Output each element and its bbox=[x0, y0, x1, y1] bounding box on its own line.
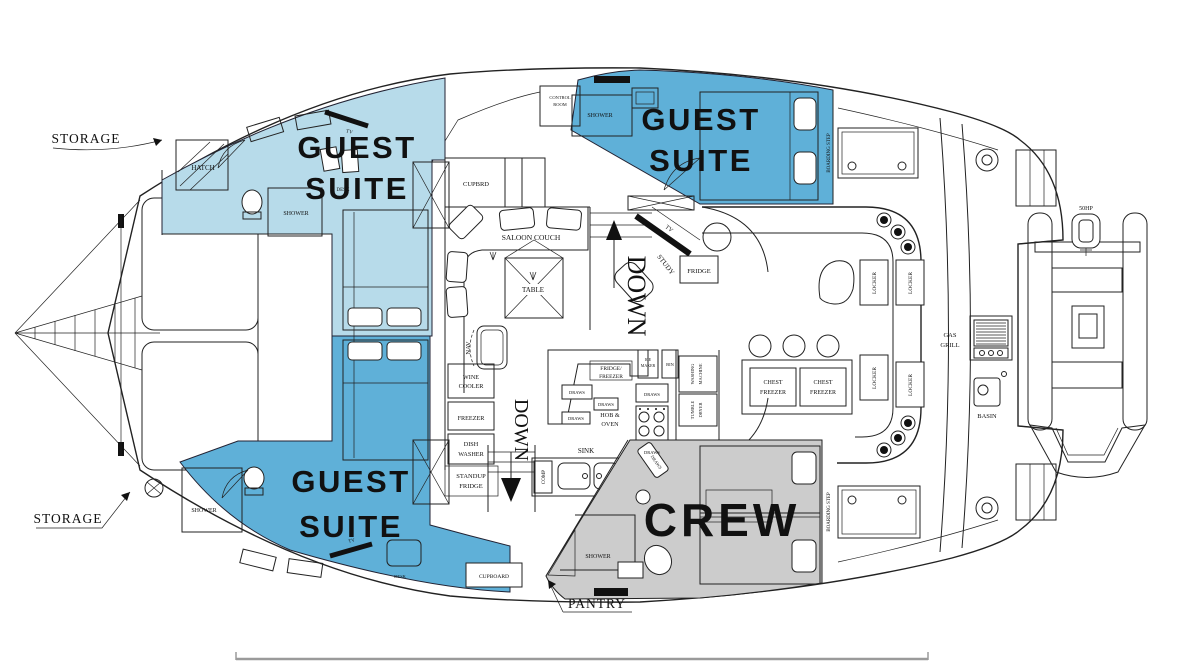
wine-cooler-label: WINE bbox=[463, 374, 479, 381]
scale-bar bbox=[236, 652, 928, 660]
basin bbox=[974, 372, 1007, 407]
ice-maker-label: ICE bbox=[645, 357, 652, 362]
pantry-hatch-mark bbox=[594, 588, 628, 596]
boarding-step-label: BOARDING STEP bbox=[827, 492, 832, 532]
cockpit bbox=[702, 207, 924, 463]
fridge-freezer-label: FRIDGE/ bbox=[600, 366, 622, 372]
up-arrow-icon bbox=[606, 220, 622, 240]
draws-label: DRAWS bbox=[598, 402, 614, 407]
bin-label: BIN bbox=[666, 362, 675, 367]
standup-fridge-box bbox=[445, 466, 498, 496]
stern-steps bbox=[1016, 150, 1063, 520]
guest-suite-top-left bbox=[162, 78, 445, 336]
tumble-dryer-label: TUMBLE bbox=[690, 401, 695, 420]
saloon-couch bbox=[446, 204, 582, 318]
hob-oven-label: OVEN bbox=[601, 421, 619, 428]
nav-label: NAV bbox=[465, 341, 472, 355]
boarding-hatch bbox=[838, 128, 918, 178]
suite-title: SUITE bbox=[649, 143, 753, 178]
chest-freezer-box bbox=[800, 368, 846, 406]
tv-icon bbox=[636, 216, 690, 254]
crew-title: CREW bbox=[644, 494, 801, 546]
boarding-hatch bbox=[838, 486, 920, 538]
freezer-label: FREEZER bbox=[458, 415, 486, 422]
standup-fridge-label: STANDUP bbox=[456, 473, 486, 480]
suite-title: GUEST bbox=[297, 130, 416, 165]
chest-freezer-label: CHEST bbox=[813, 380, 832, 386]
draws-label: DRAWS bbox=[569, 390, 585, 395]
catamaran-floorplan: STORAGE STORAGE PANTRY GUEST SUITE GUEST… bbox=[0, 0, 1200, 670]
down-arrow-icon bbox=[501, 478, 521, 502]
helm-seat bbox=[819, 261, 854, 304]
suite-title: SUITE bbox=[305, 171, 409, 206]
dinghy bbox=[1028, 213, 1147, 478]
table-label: TABLE bbox=[522, 286, 544, 294]
study-label: STUDY bbox=[655, 253, 676, 276]
guest-suite-top-right bbox=[571, 70, 833, 204]
hob-oven-label: HOB & bbox=[600, 412, 620, 419]
chest-freezer-label: CHEST bbox=[763, 380, 782, 386]
hatch-label: HATCH bbox=[191, 164, 214, 172]
desk-label: DESK bbox=[336, 188, 349, 193]
gas-grill-label: GRILL bbox=[940, 342, 959, 349]
guest-suite-top-left-area bbox=[162, 78, 445, 336]
comp-label: COMP bbox=[542, 470, 547, 484]
draws-label: DRAWS bbox=[644, 392, 660, 397]
control-room-label: CONTROL bbox=[549, 95, 571, 100]
locker-label: LOCKER bbox=[872, 272, 878, 294]
shower-label: SHOWER bbox=[283, 211, 308, 217]
draws-label: DRAWS bbox=[568, 416, 584, 421]
storage-callout: STORAGE bbox=[33, 511, 102, 526]
guest-suite-top-right-area bbox=[571, 70, 833, 204]
wine-cooler-label: COOLER bbox=[459, 383, 485, 390]
shower-label: SHOWER bbox=[587, 113, 612, 119]
chest-freezer-label: FREEZER bbox=[810, 390, 836, 396]
down-label: DOWN bbox=[510, 399, 532, 461]
sink-label: SINK bbox=[578, 447, 594, 455]
dish-washer-box bbox=[448, 434, 494, 464]
fridge-freezer-label: FREEZER bbox=[599, 374, 623, 380]
winch-icon bbox=[976, 149, 998, 519]
down-label: DOWN bbox=[622, 256, 651, 337]
cockpit-table bbox=[742, 360, 852, 414]
gas-grill-label: GAS bbox=[943, 332, 956, 339]
storage-callout: STORAGE bbox=[51, 131, 120, 146]
basin-label: BASIN bbox=[977, 413, 997, 420]
locker-boxes bbox=[860, 260, 924, 407]
floorplan-page: STORAGE STORAGE PANTRY GUEST SUITE GUEST… bbox=[0, 0, 1200, 670]
dish-washer-label: DISH bbox=[464, 441, 479, 448]
desk-label: DESK bbox=[394, 574, 407, 579]
washing-machine-label: MACHINE bbox=[698, 363, 703, 384]
chest-freezer-box bbox=[750, 368, 796, 406]
gas-grill bbox=[970, 316, 1012, 360]
dish-washer-label: WASHER bbox=[458, 451, 484, 458]
shower-label: SHOWER bbox=[585, 554, 610, 560]
bowsprit bbox=[15, 200, 163, 497]
pantry-callout: PANTRY bbox=[568, 596, 626, 611]
fridge-label: FRIDGE bbox=[687, 268, 711, 275]
washing-machine-label: WASHING bbox=[690, 363, 695, 384]
boarding-step-label: BOARDING STEP bbox=[827, 133, 832, 173]
cupbrd-label: CUPBRD bbox=[463, 181, 489, 188]
locker-label: LOCKER bbox=[908, 272, 914, 294]
chest-freezer-label: FREEZER bbox=[760, 390, 786, 396]
dinghy-console bbox=[1072, 306, 1104, 348]
locker-label: LOCKER bbox=[908, 374, 914, 396]
control-room-label: ROOM bbox=[553, 102, 567, 107]
saloon-couch-label: SALOON COUCH bbox=[502, 233, 561, 242]
deck-hatch-mark bbox=[594, 76, 630, 83]
suite-title: GUEST bbox=[641, 102, 760, 137]
suite-title: GUEST bbox=[291, 464, 410, 499]
outboard-motor bbox=[1072, 214, 1100, 256]
shower-label: SHOWER bbox=[191, 508, 216, 514]
outboard-hp-label: 50HP bbox=[1079, 206, 1093, 212]
ice-maker-label: MAKER bbox=[641, 363, 656, 368]
locker-label: LOCKER bbox=[872, 367, 878, 389]
saloon-table bbox=[505, 240, 563, 318]
tumble-dryer-label: DRYER bbox=[698, 402, 703, 417]
standup-fridge-label: FRIDGE bbox=[459, 483, 483, 490]
cup-holders-icon bbox=[877, 213, 915, 457]
cupboard-label: CUPBOARD bbox=[479, 574, 509, 580]
hob-oven bbox=[636, 406, 668, 440]
